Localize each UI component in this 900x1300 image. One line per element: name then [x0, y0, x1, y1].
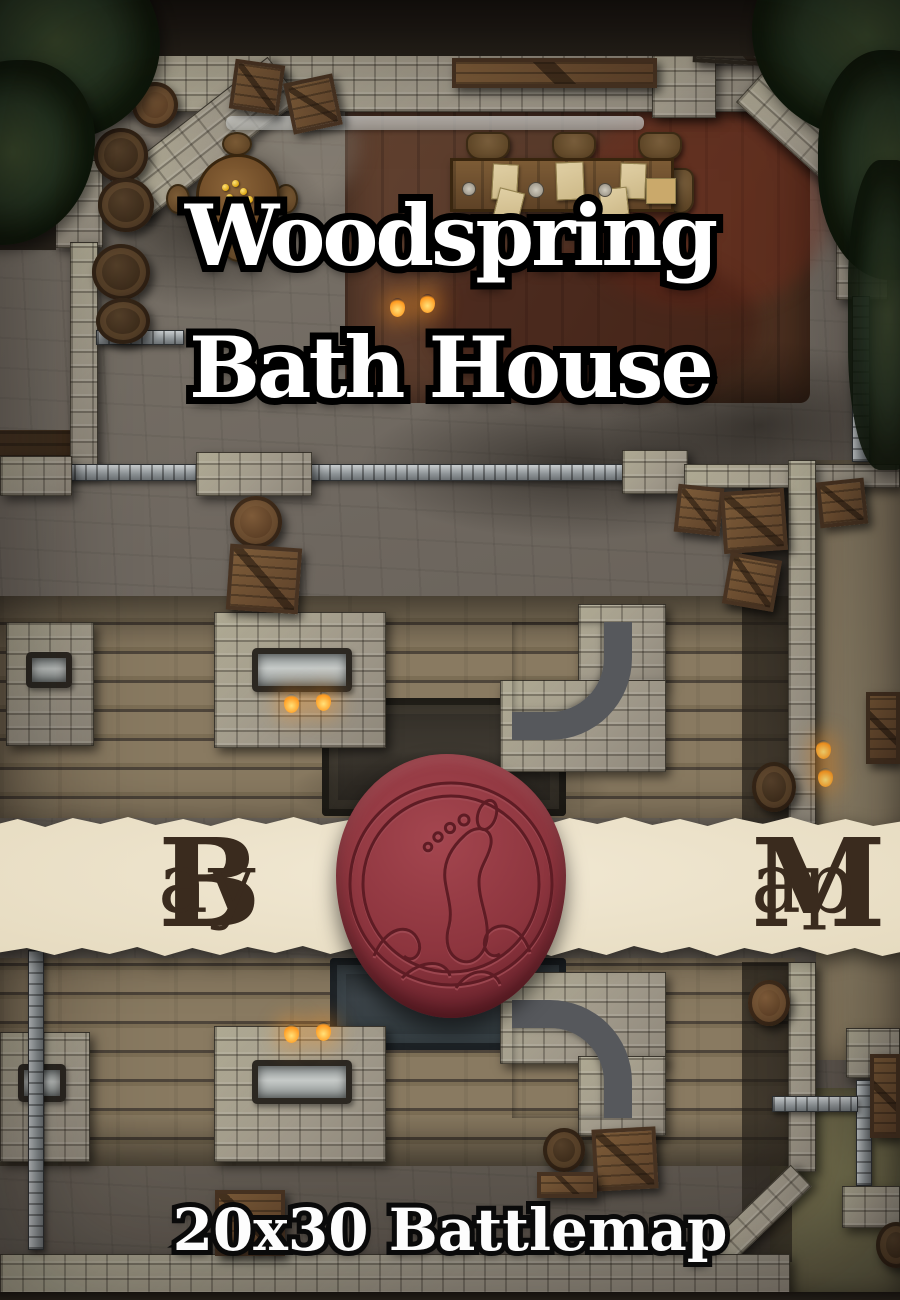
- candle-flame: [390, 298, 405, 317]
- candle-flame: [420, 294, 435, 313]
- barrel: [543, 1128, 585, 1172]
- barrel: [94, 128, 148, 182]
- footer-text: 20x30 Battlemap: [0, 1196, 900, 1264]
- crate: [816, 478, 869, 529]
- footer-size-label: 20x30 Battlemap 20x30 Battlemap: [0, 1196, 900, 1276]
- candle-flame: [316, 1022, 331, 1041]
- crate: [283, 73, 343, 134]
- title-line-1: Woodspring Woodspring: [0, 186, 900, 296]
- metal-rail: [772, 1096, 858, 1112]
- brand-rest: ap: [751, 828, 855, 938]
- crate: [537, 1172, 597, 1198]
- window-opening: [252, 648, 352, 692]
- candle-flame: [818, 768, 833, 787]
- chair: [552, 132, 596, 160]
- crate: [591, 1126, 658, 1191]
- candle-flame: [316, 692, 331, 711]
- storage-trough: [452, 58, 657, 88]
- chair: [466, 132, 510, 160]
- candle-flame: [284, 694, 299, 713]
- metal-rail: [62, 464, 202, 481]
- title-line-2: Bath House Bath House: [0, 318, 900, 428]
- brand-word-left: Bay: [48, 828, 268, 958]
- crate: [866, 692, 900, 764]
- title-text: Woodspring: [0, 186, 900, 285]
- stone-wall: [788, 962, 816, 1172]
- title-text: Bath House: [0, 318, 900, 417]
- stool: [222, 132, 252, 156]
- crate: [674, 484, 725, 537]
- candle-flame: [816, 740, 831, 759]
- metal-rail: [306, 464, 628, 481]
- crate: [870, 1054, 900, 1138]
- window-opening: [252, 1060, 352, 1104]
- barrel: [230, 496, 282, 548]
- barrel: [748, 980, 790, 1026]
- window-opening: [26, 652, 72, 688]
- stone-wall: [0, 456, 72, 496]
- footprint-icon: [336, 754, 566, 1018]
- footprint-wax-seal: [336, 754, 566, 1018]
- candle-flame: [284, 1024, 299, 1043]
- barrel: [752, 762, 796, 812]
- stone-wall: [196, 452, 312, 496]
- crate: [722, 552, 782, 612]
- chair: [638, 132, 682, 160]
- crate: [720, 488, 788, 554]
- crate: [229, 59, 285, 115]
- shadow-strip: [0, 1292, 900, 1300]
- brand-word-right: Map: [636, 828, 866, 958]
- crate: [226, 544, 302, 615]
- battlemap-cover: Woodspring Woodspring Bath House Bath Ho…: [0, 0, 900, 1300]
- stone-wall: [788, 460, 816, 826]
- roof-beam: [226, 116, 644, 130]
- brand-rest: ay: [158, 828, 256, 938]
